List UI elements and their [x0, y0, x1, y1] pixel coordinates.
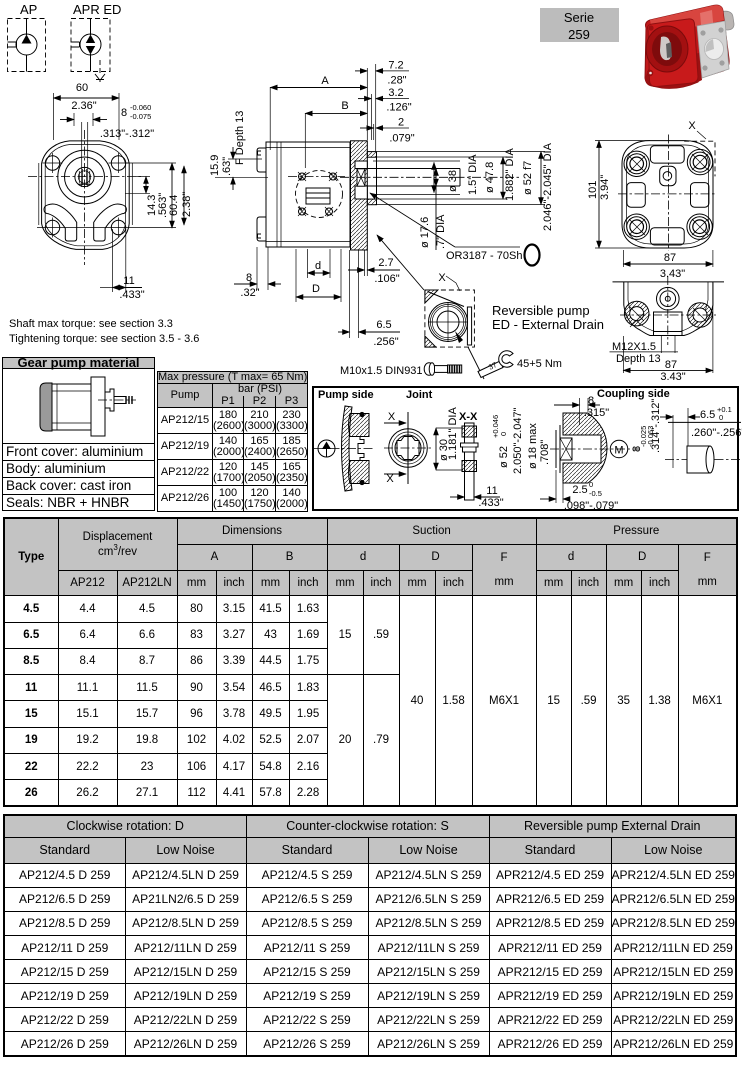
svg-text:Serie: Serie — [564, 10, 594, 25]
svg-text:d: d — [315, 260, 321, 272]
svg-text:45+5 Nm: 45+5 Nm — [517, 358, 562, 370]
svg-text:.28": .28" — [387, 75, 406, 87]
svg-text:X: X — [688, 120, 696, 132]
svg-text:OR3187 - 70Sh: OR3187 - 70Sh — [446, 250, 522, 262]
svg-text:60: 60 — [76, 82, 88, 94]
svg-text:F Depth 13: F Depth 13 — [234, 111, 246, 165]
svg-text:.7" DIA: .7" DIA — [435, 214, 447, 249]
svg-text:2: 2 — [398, 117, 404, 129]
svg-text:ø 52 f7: ø 52 f7 — [522, 161, 534, 195]
svg-text:259: 259 — [568, 27, 590, 42]
svg-text:3.43": 3.43" — [660, 371, 685, 383]
svg-text:.63": .63" — [221, 157, 233, 176]
svg-text:ø 47.8: ø 47.8 — [484, 162, 496, 193]
svg-text:ø 17.6: ø 17.6 — [419, 217, 431, 248]
svg-text:1.5" DIA: 1.5" DIA — [467, 154, 479, 195]
svg-text:ED - External Drain: ED - External Drain — [492, 317, 604, 332]
svg-text:.433": .433" — [119, 289, 144, 301]
svg-text:M12X1.5: M12X1.5 — [612, 341, 656, 353]
svg-text:60.4: 60.4 — [168, 195, 180, 216]
svg-text:Reversible pump: Reversible pump — [492, 303, 590, 318]
svg-text:Depth 13: Depth 13 — [616, 353, 661, 365]
svg-text:87: 87 — [664, 252, 676, 264]
svg-text:7.2: 7.2 — [388, 60, 403, 72]
svg-text:8: 8 — [121, 107, 127, 119]
svg-text:15.9: 15.9 — [209, 155, 221, 176]
svg-text:M10x1.5 DIN931: M10x1.5 DIN931 — [340, 365, 423, 377]
svg-text:-0.060: -0.060 — [130, 103, 151, 112]
svg-text:X: X — [438, 272, 446, 284]
svg-text:3.94": 3.94" — [599, 175, 611, 200]
svg-text:.079": .079" — [389, 133, 414, 145]
svg-text:.106": .106" — [374, 273, 399, 285]
svg-text:.126": .126" — [386, 102, 411, 114]
svg-text:B: B — [341, 100, 348, 112]
svg-text:-0.075: -0.075 — [130, 112, 151, 121]
svg-text:8: 8 — [246, 272, 252, 284]
svg-text:87: 87 — [665, 359, 677, 371]
svg-text:D: D — [312, 283, 320, 295]
svg-text:.313"-.312": .313"-.312" — [100, 128, 154, 140]
svg-text:2.7: 2.7 — [378, 257, 393, 269]
svg-text:1.882" DIA: 1.882" DIA — [504, 148, 516, 201]
svg-text:AP: AP — [20, 2, 37, 17]
svg-text:ø 38: ø 38 — [447, 170, 459, 192]
svg-text:2.046"-2.045" DIA: 2.046"-2.045" DIA — [542, 142, 554, 231]
svg-text:A: A — [321, 75, 329, 87]
svg-text:3.2: 3.2 — [388, 87, 403, 99]
svg-text:2.38": 2.38" — [181, 192, 193, 217]
svg-text:11: 11 — [123, 275, 134, 287]
svg-text:101: 101 — [587, 181, 599, 199]
svg-text:APR ED: APR ED — [73, 2, 121, 17]
svg-text:6.5: 6.5 — [376, 319, 391, 331]
svg-text:3.43": 3.43" — [660, 268, 685, 280]
svg-text:.256": .256" — [373, 336, 398, 348]
svg-text:2.36": 2.36" — [71, 100, 96, 112]
